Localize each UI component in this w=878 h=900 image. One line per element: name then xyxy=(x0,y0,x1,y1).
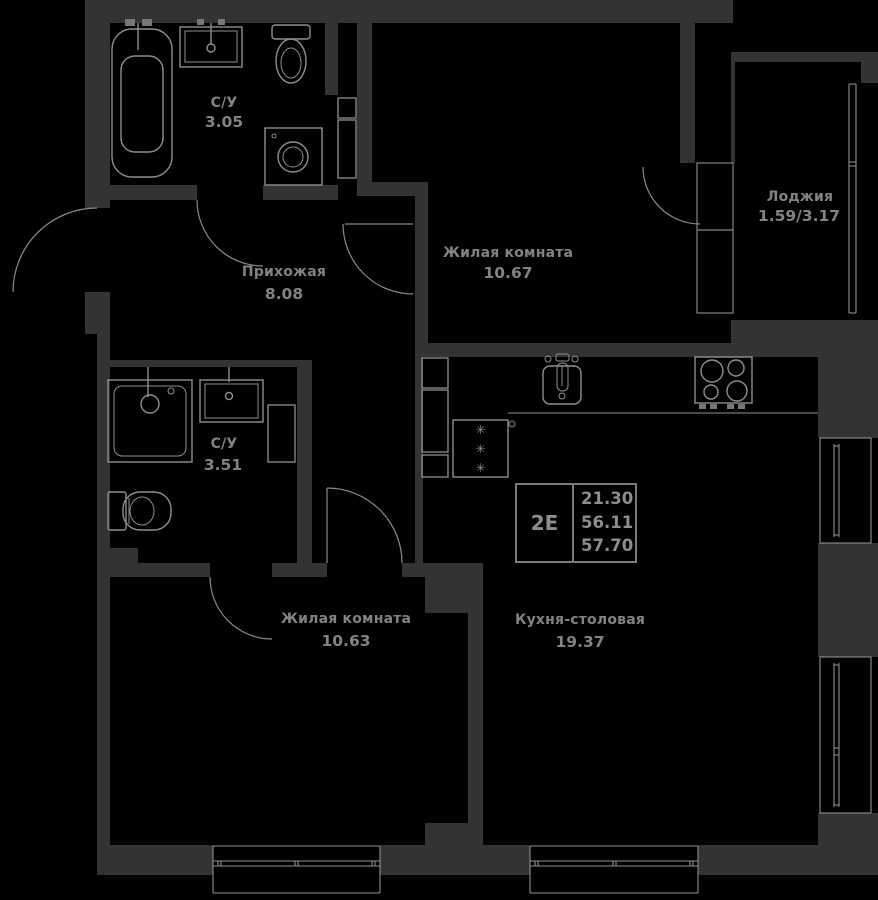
room-label-living2-area: 10.63 xyxy=(321,632,370,650)
room-label-bath2-name: С/У xyxy=(211,436,238,452)
toilet-bath2 xyxy=(108,492,171,530)
room-label-living1-area: 10.67 xyxy=(483,264,532,282)
door-arc-bath1 xyxy=(197,200,263,266)
unit-area-nosummer: 56.11 xyxy=(581,515,635,532)
room-label-living2-name: Жилая комната xyxy=(281,611,411,627)
fixtures-layer xyxy=(0,0,878,900)
floor-plan: ✳ ✳ ✳ С/У 3.05 Прихожая 8.08 Жилая комна… xyxy=(0,0,878,900)
door-arc-living2 xyxy=(327,488,402,563)
room-label-living1-name: Жилая комната xyxy=(443,245,573,261)
kitchen-sink xyxy=(543,354,581,404)
room-label-loggia-name: Лоджия xyxy=(767,189,833,205)
door-arc-loggia xyxy=(643,167,700,224)
door-arc-entrance xyxy=(13,208,97,292)
shower xyxy=(108,367,192,462)
fridge-snowflakes: ✳ ✳ ✳ xyxy=(453,424,508,474)
unit-area-total: 57.70 xyxy=(581,538,635,555)
washing-machine xyxy=(265,128,322,185)
unit-area-living: 21.30 xyxy=(581,491,635,508)
snowflake-icon: ✳ xyxy=(475,462,485,474)
window-loggia-partition xyxy=(697,163,733,313)
window-bottom-right xyxy=(530,846,698,893)
room-label-hall-area: 8.08 xyxy=(265,285,303,303)
room-label-loggia-area: 1.59/3.17 xyxy=(758,207,840,225)
window-loggia xyxy=(849,84,856,313)
unit-info-box: 2Е 21.30 56.11 57.70 xyxy=(515,483,637,563)
window-right-1 xyxy=(820,438,871,543)
window-right-2 xyxy=(820,657,871,813)
room-label-bath1-area: 3.05 xyxy=(205,113,243,131)
door-arc-living1 xyxy=(343,224,413,294)
door-arc-bath2 xyxy=(210,577,272,639)
room-label-hall-name: Прихожая xyxy=(242,264,326,280)
sink-bath1 xyxy=(180,19,242,67)
stove xyxy=(695,357,752,409)
window-bottom-left xyxy=(213,846,380,893)
snowflake-icon: ✳ xyxy=(475,443,485,455)
toilet-bath1 xyxy=(272,25,310,83)
snowflake-icon: ✳ xyxy=(475,424,485,436)
sink-bath2 xyxy=(200,367,263,422)
room-label-kitchen-name: Кухня-столовая xyxy=(515,612,645,628)
unit-type-label: 2Е xyxy=(517,485,574,561)
room-label-bath1-name: С/У xyxy=(211,95,238,111)
room-label-bath2-area: 3.51 xyxy=(204,456,242,474)
bathtub xyxy=(112,19,172,177)
room-label-kitchen-area: 19.37 xyxy=(555,633,604,651)
